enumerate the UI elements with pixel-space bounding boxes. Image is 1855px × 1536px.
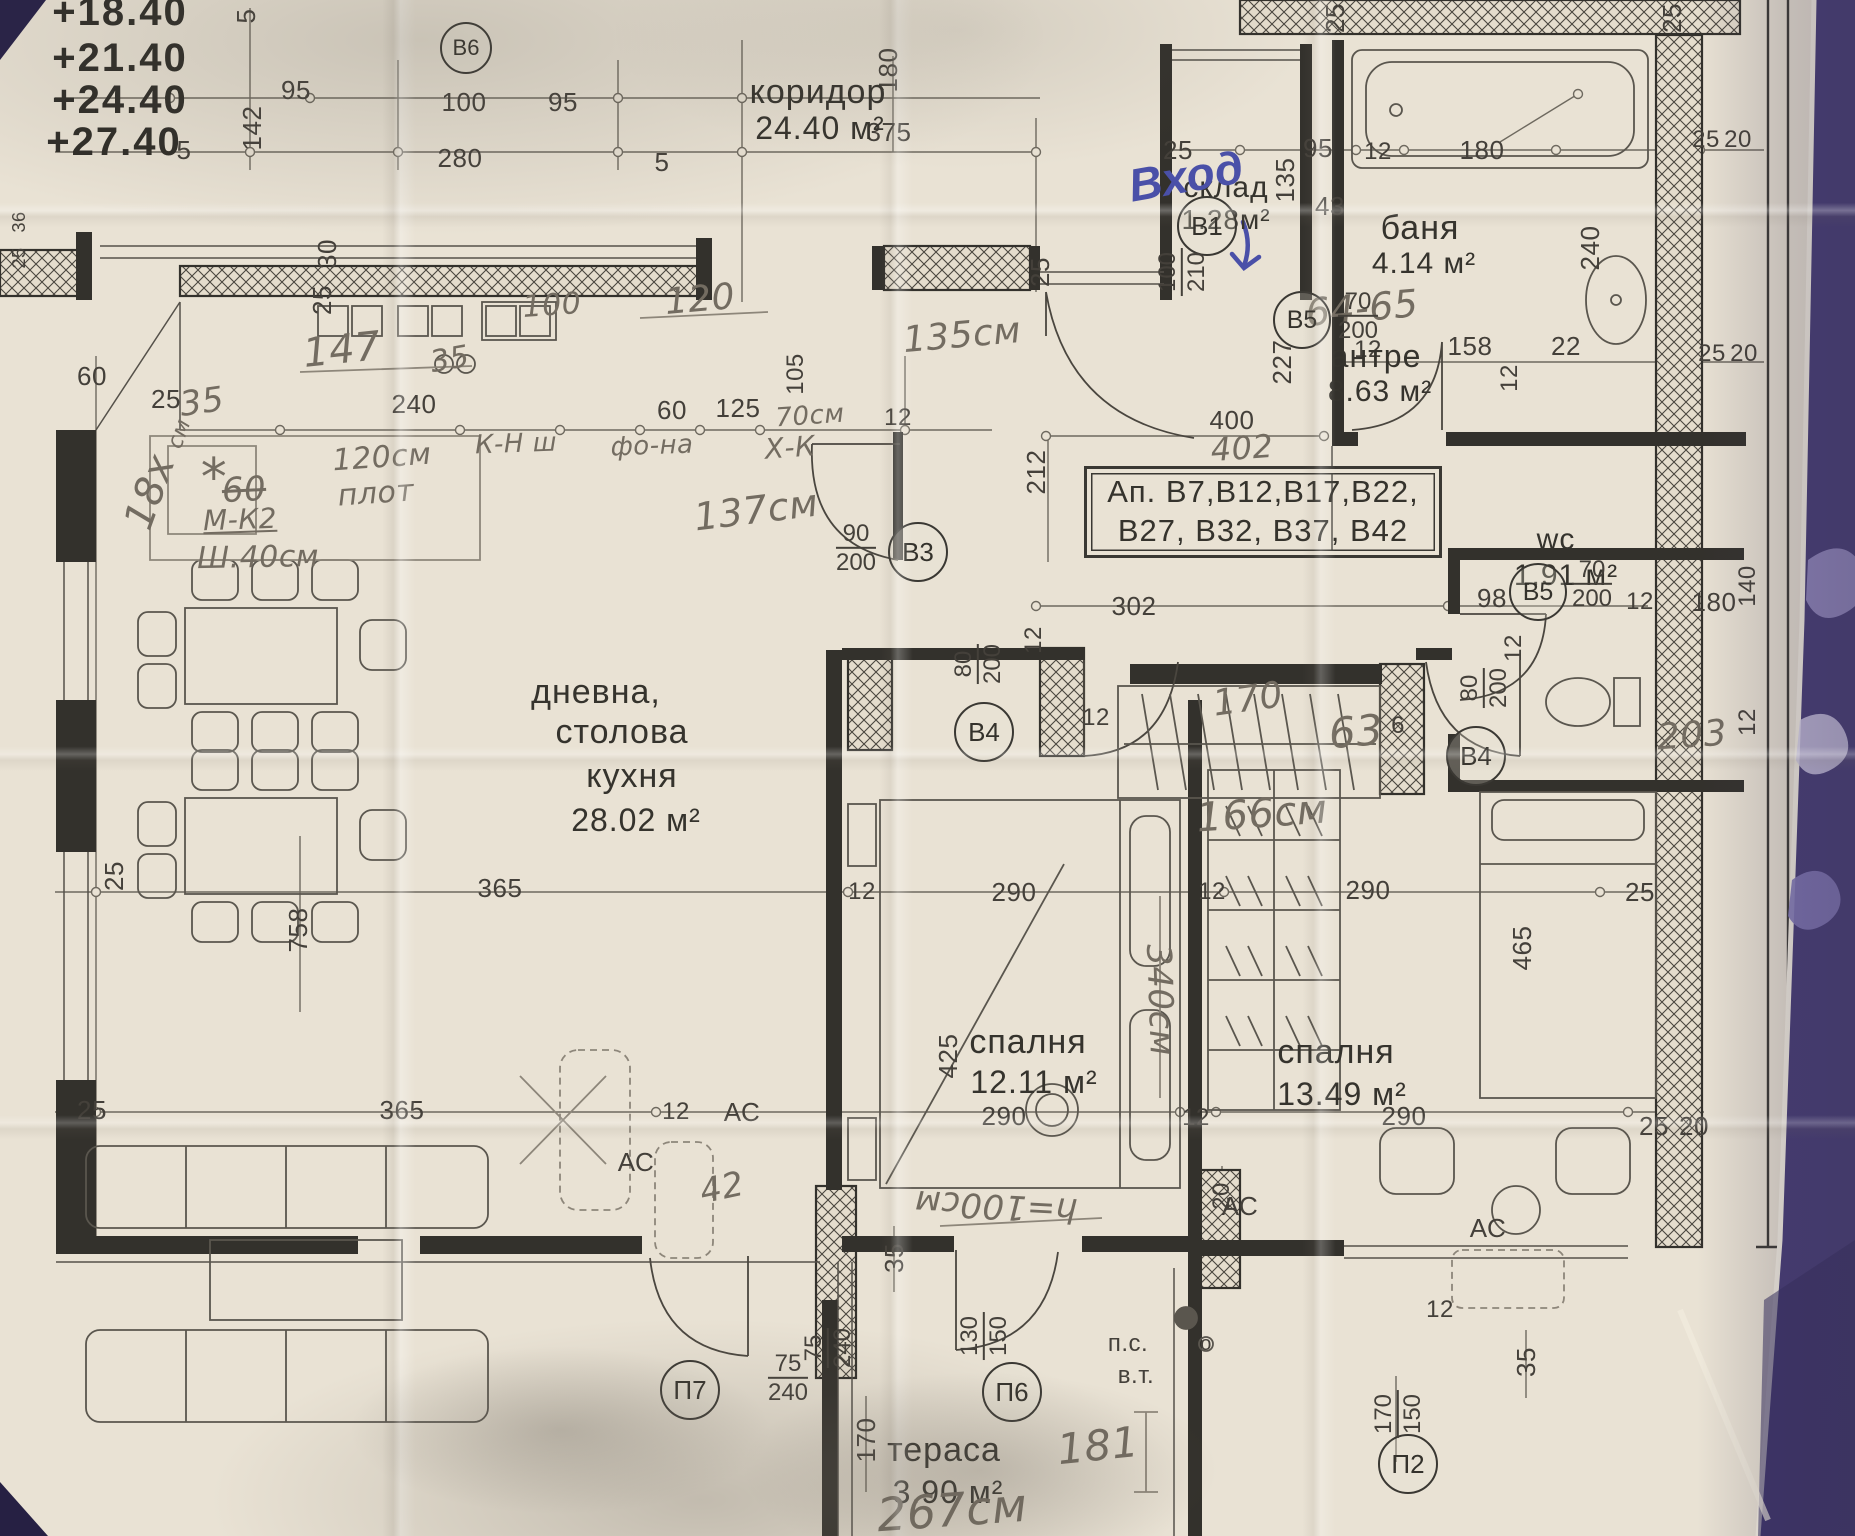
handwritten-pencil-note: 120см [332,440,433,477]
dimension-label: 365 [380,1097,425,1123]
dimension-label: 365 [478,875,523,901]
dimension-label: 125 [716,395,761,421]
dimension-label: 240 [392,391,437,417]
dimension-label: 12 [1626,590,1654,614]
handwritten-pencil-note: фо-на [610,432,694,461]
door-mark-П6: П6 [982,1362,1042,1422]
handwritten-pencil-note: Ш.40см [197,542,319,574]
dimension-label: 212 [1023,450,1049,495]
handwritten-pencil-note: 170 [1211,677,1286,722]
dimension-label: 290 [1346,877,1391,903]
handwritten-pencil-note: 402 [1210,430,1275,466]
apartment-list-line2: В27, В32, В37, В42 [1118,512,1408,551]
handwritten-pencil-note: 18х [118,449,182,534]
door-mark-П2: П2 [1378,1434,1438,1494]
dimension-label: 12 [1498,364,1522,392]
dimension-label: 12 [1182,1106,1210,1130]
dimension-label: 12 [1364,140,1392,164]
dimension-label: 12 [1502,634,1526,662]
door-mark-В3: В3 [888,522,948,582]
room-label: 24.40 м² [755,112,885,144]
handwritten-pencil-note: К-Н ш [475,430,558,459]
handwritten-pencil-note: 42 [697,1167,747,1209]
handwritten-pencil-note: 35 [178,382,227,422]
door-size-fraction: 90200 [836,521,876,575]
ac-unit-label: АС [1470,1215,1507,1241]
room-label: wc [1537,525,1576,555]
room-label: 28.02 м² [571,804,701,836]
dimension-label: 180 [1692,589,1737,615]
dimension-label: 100 [442,89,487,115]
dimension-label: 290 [992,879,1037,905]
dimension-label: 20 [1724,128,1752,152]
dimension-label: 12 [1022,626,1046,654]
dimension-label: 12 [662,1100,690,1124]
dimension-label: 22 [1551,333,1581,359]
dimension-label: 142 [239,106,265,151]
door-size-fraction: 80200 [951,644,1005,684]
room-label: тераса [887,1433,1001,1467]
door-mark-В6: В6 [440,22,492,74]
dimension-label: 12 [1082,706,1110,730]
dimension-label: 30 [314,239,340,269]
utility-label: о [1200,1334,1212,1354]
dimension-label: 290 [982,1103,1027,1129]
dimension-label: 302 [1112,593,1157,619]
elevation-mark: +21.40 [52,38,187,78]
dimension-label: 43 [1315,193,1345,219]
door-mark-В5: В5 [1273,291,1331,349]
handwritten-pencil-note: 340см [1141,944,1179,1057]
utility-label: в.т. [1118,1364,1154,1388]
handwritten-pencil-note: 70см [775,401,846,432]
ac-unit-label: АС [724,1099,761,1125]
handwritten-pencil-note: 120 [663,279,736,321]
handwritten-pencil-note: 100 [522,289,583,323]
dimension-label: 95 [548,89,578,115]
room-label: 4.14 м² [1372,249,1476,279]
dimension-label: 25 [1659,3,1685,33]
door-size-fraction: 70200 [1572,557,1612,611]
room-label: столова [555,715,688,749]
room-label: спалня [1277,1035,1394,1069]
dimension-label: 280 [438,145,483,171]
dimension-label: 465 [1509,926,1535,971]
door-size-fraction: 130150 [957,1312,1011,1360]
dimension-label: 95 [1303,135,1333,161]
room-label: баня [1381,211,1460,245]
handwritten-pencil-note: 35 [428,342,472,378]
dimension-label: 158 [1448,333,1493,359]
door-size-fraction: 80200 [1457,668,1511,708]
dimension-label: 25 [1692,128,1720,152]
dimension-label: 60 [77,363,107,389]
dimension-label: 20 [1679,1113,1709,1139]
dimension-label: 25 [151,386,181,412]
dimension-label: 240 [1577,226,1603,271]
dimension-label: 25 [101,861,127,891]
elevation-mark: +27.40 [46,122,181,162]
dimension-label: 12 [1736,708,1760,736]
room-label: кухня [586,759,677,793]
dimension-label: 25 [10,247,28,268]
handwritten-pencil-note: 267см [875,1482,1028,1536]
apartment-list-box: Ап. В7,В12,В17,В22, В27, В32, В37, В42 [1084,466,1442,558]
handwritten-pencil-note: Х-К [764,432,817,463]
dimension-label: 135 [1272,158,1298,203]
dimension-label: 12 [1426,1298,1454,1322]
dimension-label: 12 [884,406,912,430]
handwritten-pencil-note: 137см [692,484,820,537]
dimension-label: 25 [77,1097,107,1123]
dimension-label: 180 [1460,137,1505,163]
handwritten-pencil-note: 147 [301,326,383,374]
door-mark-В5: В5 [1509,563,1567,621]
room-label: коридор [750,75,887,109]
dimension-label: 12 [1198,880,1226,904]
dimension-label: 25 [1698,342,1726,366]
dimension-label: 25 [309,285,335,315]
dimension-label: 98 [1477,585,1507,611]
dimension-label: 60 [657,397,687,423]
ac-unit-label: АС [618,1149,655,1175]
room-label: антре [1331,340,1422,372]
dimension-label: 170 [853,1418,879,1463]
dimension-label: 25 [1639,1113,1669,1139]
dimension-label: 25 [1625,879,1655,905]
door-mark-В4: В4 [954,702,1014,762]
dimension-label: 758 [285,908,311,953]
labels-layer: 5951425100952805180375302536252525254325… [0,0,1855,1536]
room-label: дневна, [531,675,661,709]
door-size-fraction: 170150 [1371,1390,1425,1438]
handwritten-pencil-note: 166см [1195,789,1328,838]
dimension-label: 5 [233,9,259,24]
door-size-fraction: 70200 [1338,289,1378,343]
dimension-label: 425 [935,1034,961,1079]
dimension-label: 105 [784,353,808,395]
floor-plan-photo: 5951425100952805180375302536252525254325… [0,0,1855,1536]
handwritten-pencil-note: М-К2 [203,505,278,536]
apartment-list-line1: Ап. В7,В12,В17,В22, [1107,473,1419,512]
handwritten-pencil-note: см [165,416,196,451]
dimension-label: 36 [10,211,28,232]
dimension-label: 95 [281,77,311,103]
dimension-label: 6 [1391,714,1405,738]
dimension-label: 25 [1027,257,1053,287]
room-label: 13.49 м² [1277,1078,1407,1110]
elevation-mark: +18.40 [52,0,187,32]
door-mark-П7: П7 [660,1360,720,1420]
dimension-label: 25 [1322,3,1348,33]
door-size-fraction: 100210 [1155,248,1209,296]
room-label: 8.63 м² [1328,377,1432,407]
handwritten-pencil-note: 63 [1327,709,1385,756]
door-mark-В4: В4 [1446,726,1506,786]
handwritten-pencil-note: 135см [902,313,1023,359]
handwritten-pencil-note: 181 [1055,1421,1141,1471]
ac-unit-label: АС [1222,1193,1259,1219]
dimension-label: 5 [655,149,670,175]
dimension-label: 35 [881,1243,907,1273]
door-size-fraction: 75240 [801,1328,855,1368]
room-label: спалня [969,1025,1086,1059]
room-label: 12.11 м² [970,1066,1097,1098]
dimension-label: 140 [1736,565,1760,607]
elevation-mark: +24.40 [52,80,187,120]
dimension-label: 35 [1513,1347,1539,1377]
dimension-label: 12 [848,880,876,904]
handwritten-pencil-note: h=100см [914,1185,1078,1227]
handwritten-pencil-note: плот [337,476,416,511]
utility-label: п.с. [1108,1332,1148,1356]
dimension-label: 20 [1730,342,1758,366]
handwritten-pencil-note: 203 [1656,716,1729,757]
